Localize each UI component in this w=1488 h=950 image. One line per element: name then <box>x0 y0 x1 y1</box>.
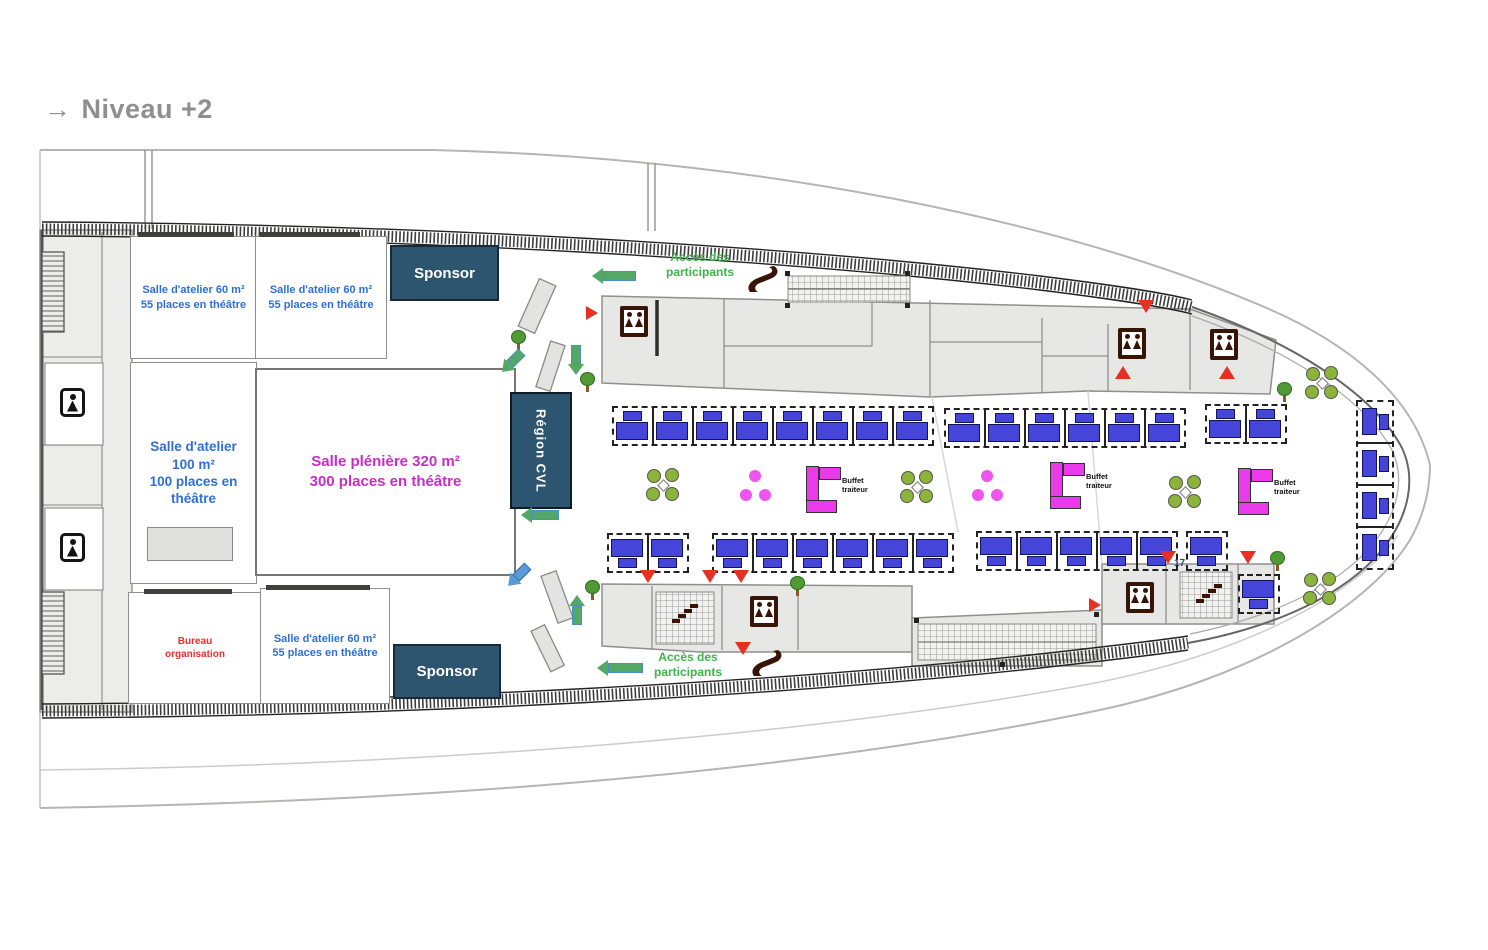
chair-dot <box>1306 367 1320 381</box>
booth-table <box>988 424 1020 442</box>
elevator-icon <box>620 306 648 337</box>
tree-icon <box>511 330 525 350</box>
exhibitor-booth <box>1106 410 1146 446</box>
pink-dot <box>972 489 984 501</box>
tree-canopy <box>1270 551 1285 565</box>
direction-arrow <box>597 662 643 674</box>
tree-canopy <box>1277 382 1292 396</box>
person-body <box>1225 341 1233 350</box>
person-body <box>67 401 78 412</box>
booth-chair <box>783 411 802 421</box>
chair-dot <box>1322 572 1336 586</box>
booth-table <box>796 539 828 557</box>
person-head <box>1227 335 1232 340</box>
direction-arrow <box>504 562 532 590</box>
booth-group <box>944 408 1186 448</box>
chair-dot <box>1324 385 1338 399</box>
booth-table <box>1362 534 1377 561</box>
chair-dot <box>1169 476 1183 490</box>
person-head <box>1135 334 1140 339</box>
door-marker-triangle <box>1138 300 1154 313</box>
booth-chair <box>1115 413 1134 423</box>
booth-table <box>756 539 788 557</box>
exhibitor-booth <box>609 535 649 571</box>
exhibitor-booth <box>874 535 914 571</box>
chair-dot <box>1305 385 1319 399</box>
direction-arrow <box>592 270 636 282</box>
stairs-icon <box>1196 584 1226 608</box>
booth-table <box>896 422 928 440</box>
booth-table <box>1108 424 1140 442</box>
person-head <box>627 312 632 317</box>
booth-chair <box>1249 599 1268 609</box>
booth-table <box>856 422 888 440</box>
exhibitor-booth <box>1240 576 1278 612</box>
booth-table <box>716 539 748 557</box>
chair-dot <box>665 468 679 482</box>
booth-table <box>816 422 848 440</box>
arrow-head <box>592 268 603 284</box>
booth-table <box>736 422 768 440</box>
person-figure <box>625 312 633 333</box>
tree-trunk <box>1283 396 1286 402</box>
exhibitor-booth <box>649 535 687 571</box>
booth-chair <box>743 411 762 421</box>
person-figure <box>67 539 78 557</box>
stair-step <box>1202 594 1210 598</box>
booth-group <box>1205 404 1287 444</box>
door-marker-triangle <box>735 642 751 655</box>
arrow-head <box>521 507 532 523</box>
booth-chair <box>1379 540 1389 556</box>
booth-table <box>611 539 643 557</box>
booth-chair <box>923 558 942 568</box>
exhibitor-booth <box>694 408 734 444</box>
booth-table <box>1190 537 1222 555</box>
booth-chair <box>1379 456 1389 472</box>
booth-chair <box>663 411 682 421</box>
door-marker-triangle <box>1219 366 1235 379</box>
buffet-counter <box>1063 463 1085 476</box>
chair-dot <box>1304 573 1318 587</box>
booth-table <box>948 424 980 442</box>
tree-icon <box>580 372 594 392</box>
booth-chair <box>803 558 822 568</box>
stair-step <box>1208 589 1216 593</box>
exhibitor-booth <box>774 408 814 444</box>
arrow-shaft <box>571 345 581 364</box>
buffet-counter <box>1238 502 1269 515</box>
person-body <box>635 318 643 327</box>
tree-icon <box>585 580 599 600</box>
buffet-station: Buffet traiteur <box>1238 468 1310 516</box>
tree-trunk <box>796 590 799 596</box>
buffet-counter <box>1050 496 1081 509</box>
buffet-counter <box>806 500 837 513</box>
booth-chair <box>955 413 974 423</box>
cocktail-table-cluster <box>1303 572 1336 605</box>
tree-canopy <box>790 576 805 590</box>
direction-arrow <box>498 348 526 376</box>
person-body <box>755 608 763 617</box>
chair-dot <box>1303 591 1317 605</box>
booth-chair <box>1379 498 1389 514</box>
booth-table <box>1362 408 1377 435</box>
stair-step <box>684 609 692 613</box>
person-body <box>1123 340 1131 349</box>
person-head <box>1133 588 1138 593</box>
buffet-station: Buffet traiteur <box>806 466 878 514</box>
person-figure <box>635 312 643 333</box>
booth-table <box>1020 537 1052 555</box>
booth-group <box>712 533 954 573</box>
door-marker-triangle <box>640 570 656 583</box>
door-marker-triangle <box>1115 366 1131 379</box>
booth-chair <box>723 558 742 568</box>
exhibitor-booth <box>1058 533 1098 569</box>
elevator-icon <box>1118 328 1146 359</box>
person-head <box>1217 335 1222 340</box>
booth-table <box>1028 424 1060 442</box>
exhibitor-booth <box>986 410 1026 446</box>
booth-group <box>976 531 1178 571</box>
person-figure <box>1141 588 1149 609</box>
exhibitor-booth <box>1358 486 1392 528</box>
person-figure <box>1133 334 1141 355</box>
person-body <box>1133 340 1141 349</box>
chair-dot <box>1187 494 1201 508</box>
person-body <box>1215 341 1223 350</box>
person-body <box>1141 594 1149 603</box>
exhibitor-booth <box>1247 406 1285 442</box>
booth-table <box>1060 537 1092 555</box>
door-marker-triangle <box>586 306 598 320</box>
person-figure <box>1215 335 1223 356</box>
cocktail-table-cluster <box>1168 475 1201 508</box>
booth-chair <box>995 413 1014 423</box>
booth-chair <box>703 411 722 421</box>
pink-dot <box>991 489 1003 501</box>
pink-dot <box>759 489 771 501</box>
booth-table <box>916 539 948 557</box>
buffet-counter <box>1251 469 1273 482</box>
exhibitor-booth <box>1026 410 1066 446</box>
chair-dot <box>901 471 915 485</box>
arrow-shaft <box>532 510 559 520</box>
wc-icon <box>60 533 85 562</box>
arrow-shaft <box>608 663 643 673</box>
booth-table <box>696 422 728 440</box>
wc-icon <box>60 388 85 417</box>
person-body <box>67 546 78 557</box>
chair-dot <box>1322 591 1336 605</box>
exhibitor-booth <box>834 535 874 571</box>
person-figure <box>1225 335 1233 356</box>
exhibitor-booth <box>1358 444 1392 486</box>
chair-dot <box>919 489 933 503</box>
exhibitor-booth <box>1207 406 1247 442</box>
door-marker-triangle <box>702 570 718 583</box>
exhibitor-booth <box>1066 410 1106 446</box>
tree-trunk <box>586 386 589 392</box>
booth-table <box>1068 424 1100 442</box>
chair-dot <box>1168 494 1182 508</box>
person-head <box>70 394 76 400</box>
arrow-head <box>569 595 585 606</box>
booth-table <box>1242 580 1274 598</box>
elevator-icon <box>1210 329 1238 360</box>
person-head <box>70 539 76 545</box>
person-head <box>767 602 772 607</box>
exhibitor-booth <box>654 408 694 444</box>
chair-dot <box>1187 475 1201 489</box>
person-head <box>1143 588 1148 593</box>
booth-table <box>980 537 1012 555</box>
door-marker-triangle <box>1160 551 1176 564</box>
exhibitor-booth <box>814 408 854 444</box>
booth-table <box>876 539 908 557</box>
booth-chair <box>1155 413 1174 423</box>
exhibitor-booth <box>734 408 774 444</box>
booth-chair <box>1067 556 1086 566</box>
pink-table-cluster <box>740 470 773 503</box>
booth-chair <box>1107 556 1126 566</box>
exhibitor-booth <box>854 408 894 444</box>
booth-chair <box>1027 556 1046 566</box>
booth-chair <box>1379 414 1389 430</box>
booth-chair <box>843 558 862 568</box>
booth-table <box>776 422 808 440</box>
tree-canopy <box>585 580 600 594</box>
booth-chair <box>903 411 922 421</box>
exhibitor-booth <box>714 535 754 571</box>
booth-group <box>612 406 934 446</box>
chair-dot <box>665 487 679 501</box>
exhibitor-booth <box>754 535 794 571</box>
door-marker-triangle <box>1240 551 1256 564</box>
exhibitor-booth <box>946 410 986 446</box>
person-figure <box>755 602 763 623</box>
booth-table <box>1148 424 1180 442</box>
booth-group <box>607 533 689 573</box>
tree-icon <box>1270 551 1284 571</box>
person-body <box>625 318 633 327</box>
direction-arrow <box>521 509 559 521</box>
chair-dot <box>646 487 660 501</box>
furniture-layer: Buffet traiteurBuffet traiteurBuffet tra… <box>0 0 1488 950</box>
elevator-icon <box>1126 582 1154 613</box>
booth-chair <box>1035 413 1054 423</box>
stairs-icon <box>672 604 702 628</box>
tree-icon <box>790 576 804 596</box>
exhibitor-booth <box>1146 410 1184 446</box>
direction-arrow <box>570 345 582 375</box>
buffet-counter <box>819 467 841 480</box>
person-head <box>637 312 642 317</box>
booth-group <box>1238 574 1280 614</box>
tree-canopy <box>511 330 526 344</box>
buffet-label: Buffet traiteur <box>842 477 868 494</box>
arrow-shaft <box>572 606 582 625</box>
stair-step <box>690 604 698 608</box>
booth-table <box>1362 450 1377 477</box>
booth-chair <box>658 558 677 568</box>
chair-dot <box>919 470 933 484</box>
direction-arrow <box>571 595 583 625</box>
pink-dot <box>981 470 993 482</box>
person-head <box>757 602 762 607</box>
pink-dot <box>749 470 761 482</box>
tree-trunk <box>1276 565 1279 571</box>
booth-chair <box>1197 556 1216 566</box>
elevator-icon <box>750 596 778 627</box>
booth-chair <box>623 411 642 421</box>
exhibitor-booth <box>978 533 1018 569</box>
chair-dot <box>1324 366 1338 380</box>
arrow-shaft <box>603 271 636 281</box>
door-marker-triangle <box>1089 598 1101 612</box>
person-head <box>1125 334 1130 339</box>
exhibitor-booth <box>894 408 932 444</box>
booth-table <box>836 539 868 557</box>
exhibitor-booth <box>1098 533 1138 569</box>
exhibitor-booth <box>614 408 654 444</box>
cocktail-table-cluster <box>646 468 679 501</box>
booth-table <box>616 422 648 440</box>
booth-group <box>1356 400 1394 570</box>
booth-table <box>651 539 683 557</box>
booth-chair <box>618 558 637 568</box>
person-figure <box>1131 588 1139 609</box>
exhibitor-booth <box>794 535 834 571</box>
person-figure <box>67 394 78 412</box>
booth-table <box>1209 420 1241 438</box>
booth-chair <box>987 556 1006 566</box>
person-body <box>765 608 773 617</box>
pink-dot <box>740 489 752 501</box>
door-marker-triangle <box>733 570 749 583</box>
tree-icon <box>1277 382 1291 402</box>
booth-chair <box>1216 409 1235 419</box>
person-figure <box>765 602 773 623</box>
stair-step <box>1214 584 1222 588</box>
arrow-head <box>597 660 608 676</box>
booth-chair <box>823 411 842 421</box>
chair-dot <box>900 489 914 503</box>
stair-step <box>672 619 680 623</box>
booth-chair <box>1256 409 1275 419</box>
booth-chair <box>1075 413 1094 423</box>
buffet-label: Buffet traiteur <box>1086 473 1112 490</box>
buffet-station: Buffet traiteur <box>1050 462 1122 510</box>
person-figure <box>1123 334 1131 355</box>
chair-dot <box>647 469 661 483</box>
exhibitor-booth <box>914 535 952 571</box>
booth-group <box>1186 531 1228 571</box>
arrow-head <box>568 364 584 375</box>
exhibitor-booth <box>1018 533 1058 569</box>
booth-table <box>656 422 688 440</box>
booth-chair <box>763 558 782 568</box>
exhibitor-booth <box>1188 533 1226 569</box>
booth-chair <box>883 558 902 568</box>
exhibitor-booth <box>1358 402 1392 444</box>
floor-plan-canvas: → Niveau +2 Salle d'atelier 60 m² 55 pla… <box>0 0 1488 950</box>
pink-table-cluster <box>972 470 1005 503</box>
exhibitor-booth <box>1358 528 1392 568</box>
stair-step <box>678 614 686 618</box>
stair-step <box>1196 599 1204 603</box>
booth-table <box>1100 537 1132 555</box>
person-body <box>1131 594 1139 603</box>
tree-trunk <box>591 594 594 600</box>
booth-table <box>1249 420 1281 438</box>
cocktail-table-cluster <box>1305 366 1338 399</box>
booth-chair <box>863 411 882 421</box>
buffet-label: Buffet traiteur <box>1274 479 1300 496</box>
cocktail-table-cluster <box>900 470 933 503</box>
booth-table <box>1362 492 1377 519</box>
